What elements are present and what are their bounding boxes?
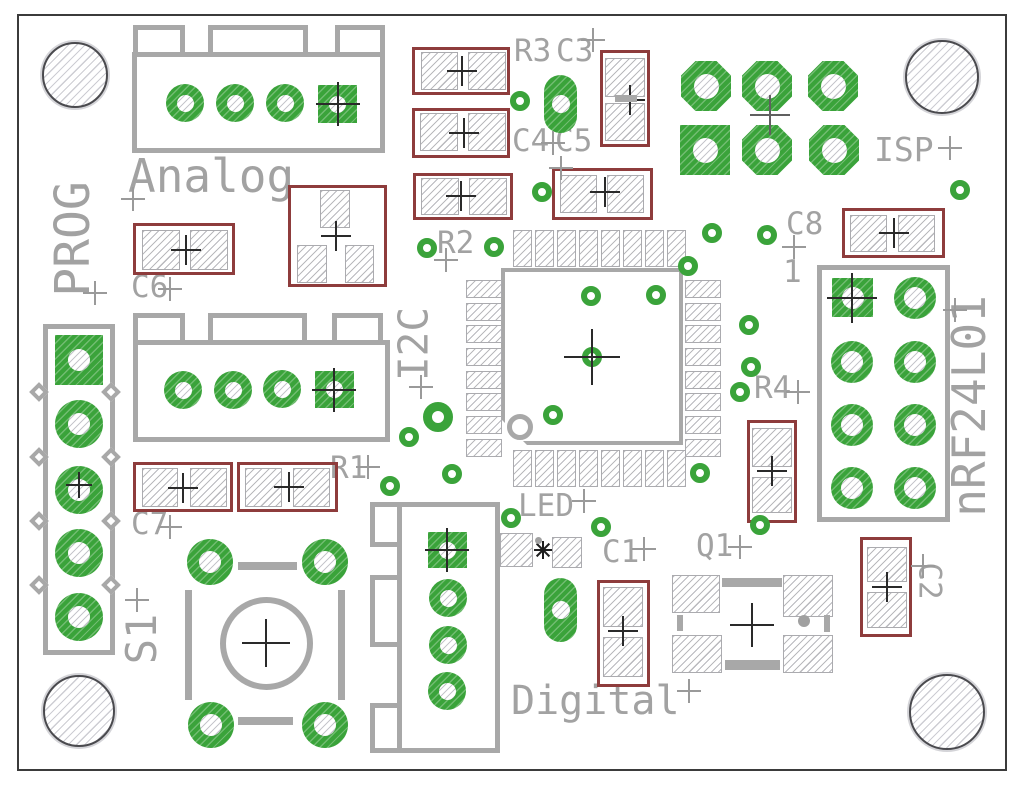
label-prog: PROG — [49, 181, 97, 297]
label-s1: S1 — [121, 614, 163, 665]
via — [501, 508, 521, 528]
digital-connector-tab — [370, 575, 397, 647]
via — [690, 463, 710, 483]
analog-connector-tab — [133, 25, 185, 52]
origin-cross — [449, 118, 479, 148]
pad-hole — [841, 414, 863, 436]
smd-pad — [672, 575, 720, 613]
th-pad-round — [831, 404, 873, 446]
pad-hole — [199, 551, 221, 573]
pad-hole — [439, 683, 456, 700]
via — [442, 464, 462, 484]
s1-outline-segment — [238, 562, 297, 570]
via — [484, 237, 504, 257]
th-pad-round — [831, 341, 873, 383]
pad-hole — [552, 95, 570, 113]
pad-hole — [440, 590, 457, 607]
via — [423, 402, 453, 432]
pad-hole — [225, 382, 242, 399]
pad-hole — [841, 351, 863, 373]
th-pad-round — [188, 702, 234, 748]
mounting-hole-bottom-left — [43, 675, 115, 747]
origin-cross — [425, 528, 469, 572]
label-pin1: 1 — [783, 257, 802, 288]
smd-pad — [783, 575, 833, 617]
pad-hole — [904, 287, 926, 309]
th-pad-octagon — [809, 125, 859, 175]
origin-cross — [608, 616, 638, 646]
mounting-hole-bottom-right — [909, 674, 985, 750]
label-anchor-cross — [158, 277, 182, 301]
pad-hole — [277, 95, 294, 112]
th-pad-round — [263, 370, 301, 408]
label-anchor-cross — [549, 156, 573, 180]
via — [757, 225, 777, 245]
origin-cross — [757, 456, 787, 486]
th-pad-round — [55, 400, 103, 448]
ic-pad-row-top — [513, 230, 686, 267]
ic-pad — [557, 450, 576, 487]
origin-cross — [872, 572, 902, 602]
label-anchor-cross — [782, 235, 806, 259]
marker-dot — [535, 537, 542, 544]
th-pad-round — [894, 277, 936, 319]
ic-pin1-marker — [507, 414, 533, 440]
pad-hole — [175, 382, 192, 399]
th-pad-round — [831, 467, 873, 509]
origin-cross — [321, 221, 351, 251]
origin-cross — [750, 95, 790, 135]
ic-pad — [513, 230, 532, 267]
origin-cross — [879, 218, 909, 248]
via — [399, 427, 419, 447]
ic-pad — [466, 280, 502, 298]
th-pad-round — [216, 84, 254, 122]
pad-hole — [552, 601, 570, 619]
th-pad-oval — [544, 75, 577, 133]
ic-pad — [685, 280, 721, 298]
ic-pad — [535, 230, 554, 267]
label-led: LED — [518, 491, 574, 522]
label-anchor-cross — [356, 455, 380, 479]
origin-cross — [590, 177, 620, 207]
th-pad-round — [166, 84, 204, 122]
pad-hole — [314, 551, 336, 573]
ic-pad — [623, 230, 642, 267]
label-digital: Digital — [511, 681, 680, 721]
ic-pad — [579, 450, 598, 487]
pcb-layout-canvas: Analog Digital ISP PROG I2C nRF24L01 S1 … — [0, 0, 1023, 788]
th-pad-round — [894, 467, 936, 509]
ic-pad — [466, 439, 502, 457]
th-pad-round — [894, 404, 936, 446]
label-anchor-cross — [158, 515, 182, 539]
via — [581, 286, 601, 306]
th-pad-round — [894, 341, 936, 383]
pad-hole — [821, 74, 846, 99]
ic-pad — [685, 348, 721, 366]
th-pad-round — [55, 593, 103, 641]
origin-cross — [312, 368, 356, 412]
label-anchor-cross — [572, 489, 596, 513]
via — [678, 256, 698, 276]
origin-cross — [168, 473, 198, 503]
label-anchor-cross — [125, 588, 149, 612]
label-anchor-cross — [581, 28, 605, 52]
mounting-hole-top-right — [905, 40, 979, 114]
origin-cross — [446, 181, 476, 211]
label-i2c: I2C — [394, 307, 435, 381]
s1-outline-segment — [238, 717, 293, 725]
ic-pad — [623, 450, 642, 487]
silkscreen-bar — [677, 615, 683, 631]
origin-cross — [274, 472, 304, 502]
label-anchor-cross — [677, 679, 701, 703]
ic-pad-row-bottom — [513, 450, 686, 487]
smd-pad — [552, 537, 582, 568]
label-anchor-cross — [943, 298, 967, 322]
ic-pad — [667, 450, 686, 487]
ic-pad — [685, 393, 721, 411]
origin-cross — [316, 82, 360, 126]
pad-hole — [440, 637, 457, 654]
origin-cross — [730, 603, 774, 647]
label-anchor-cross — [786, 380, 810, 404]
silkscreen-bar — [615, 95, 637, 102]
label-isp: ISP — [874, 133, 934, 166]
ic-pad — [601, 230, 620, 267]
th-pad-oval — [544, 578, 577, 642]
th-pad-round — [429, 626, 467, 664]
i2c-connector-tab — [208, 313, 307, 340]
label-anchor-cross — [434, 248, 458, 272]
origin-cross — [66, 472, 92, 498]
via — [739, 315, 759, 335]
via — [380, 476, 400, 496]
pad-hole — [822, 138, 847, 163]
pad-hole — [68, 606, 90, 628]
ic-pad — [513, 450, 532, 487]
ic-pad — [466, 325, 502, 343]
label-anchor-cross — [121, 187, 145, 211]
ic-pad — [466, 393, 502, 411]
origin-cross — [242, 619, 290, 667]
label-analog: Analog — [128, 153, 294, 199]
ic-pad — [466, 303, 502, 321]
pad-hole — [904, 414, 926, 436]
pad-hole — [841, 477, 863, 499]
via — [532, 182, 552, 202]
i2c-connector-tab — [332, 313, 383, 340]
pad-hole — [694, 74, 719, 99]
ic-pad — [557, 230, 576, 267]
s1-outline-segment — [185, 590, 192, 700]
via — [510, 91, 530, 111]
label-anchor-cross — [938, 136, 962, 160]
th-pad-octagon — [681, 61, 731, 111]
silkscreen-bar — [725, 660, 780, 670]
th-pad-round — [266, 84, 304, 122]
ic-pad — [685, 371, 721, 389]
ic-pad — [685, 416, 721, 434]
origin-cross — [564, 329, 620, 385]
smd-pad — [783, 635, 833, 673]
ic-pad — [685, 303, 721, 321]
ic-pad — [535, 450, 554, 487]
th-pad-round — [429, 579, 467, 617]
th-pad-octagon — [808, 61, 858, 111]
label-anchor-cross — [409, 375, 433, 399]
pad-hole — [177, 95, 194, 112]
th-pad-round — [302, 539, 348, 585]
via — [646, 285, 666, 305]
ic-pad — [645, 230, 664, 267]
pad-hole — [68, 349, 90, 371]
analog-connector-tab — [335, 25, 385, 52]
ic-pad — [685, 325, 721, 343]
pad-hole — [200, 714, 222, 736]
pad-hole — [68, 542, 90, 564]
digital-connector-tab — [370, 703, 397, 753]
th-pad-round — [302, 702, 348, 748]
via — [741, 357, 761, 377]
th-pad-square — [680, 125, 730, 175]
pad-hole — [693, 138, 718, 163]
pad-hole — [274, 381, 291, 398]
ic-pad-col-left — [466, 280, 502, 457]
th-pad-round — [428, 672, 466, 710]
silkscreen-bar — [722, 578, 782, 587]
smd-pad — [672, 635, 722, 673]
via — [591, 517, 611, 537]
label-nrf24l01: nRF24L01 — [946, 295, 992, 517]
th-pad-round — [214, 371, 252, 409]
ic-pad — [685, 439, 721, 457]
label-r3: R3 — [514, 36, 551, 67]
pad-hole — [904, 351, 926, 373]
th-pad-round — [55, 529, 103, 577]
via — [730, 382, 750, 402]
label-anchor-cross — [728, 535, 752, 559]
i2c-connector-tab — [133, 313, 185, 340]
label-anchor-cross — [541, 131, 565, 155]
th-pad-round — [164, 371, 202, 409]
via — [950, 180, 970, 200]
via — [543, 405, 563, 425]
th-pad-round — [187, 539, 233, 585]
mounting-hole-top-left — [42, 42, 108, 108]
silkscreen-bar — [824, 615, 830, 632]
ic-pad — [579, 230, 598, 267]
pad-hole — [755, 138, 780, 163]
ic-pad-col-right — [685, 280, 721, 457]
via — [702, 223, 722, 243]
origin-cross — [171, 235, 201, 265]
digital-connector-tab — [370, 502, 397, 547]
label-anchor-cross — [83, 281, 107, 305]
label-anchor-cross — [911, 554, 935, 578]
via — [750, 515, 770, 535]
ic-pad — [466, 371, 502, 389]
analog-connector-tab — [208, 25, 308, 52]
ic-pad — [466, 416, 502, 434]
ic-pad — [466, 348, 502, 366]
smd-pad — [500, 533, 533, 567]
pad-hole — [314, 714, 336, 736]
pad-hole — [904, 477, 926, 499]
pad-hole — [227, 95, 244, 112]
th-pad-square — [55, 335, 103, 385]
s1-outline-segment — [338, 590, 345, 700]
ic-pad — [645, 450, 664, 487]
ic-pad — [601, 450, 620, 487]
origin-cross — [827, 273, 877, 323]
pad-hole — [68, 413, 90, 435]
marker-dot — [798, 615, 810, 627]
label-anchor-cross — [632, 537, 656, 561]
origin-cross — [447, 56, 477, 86]
